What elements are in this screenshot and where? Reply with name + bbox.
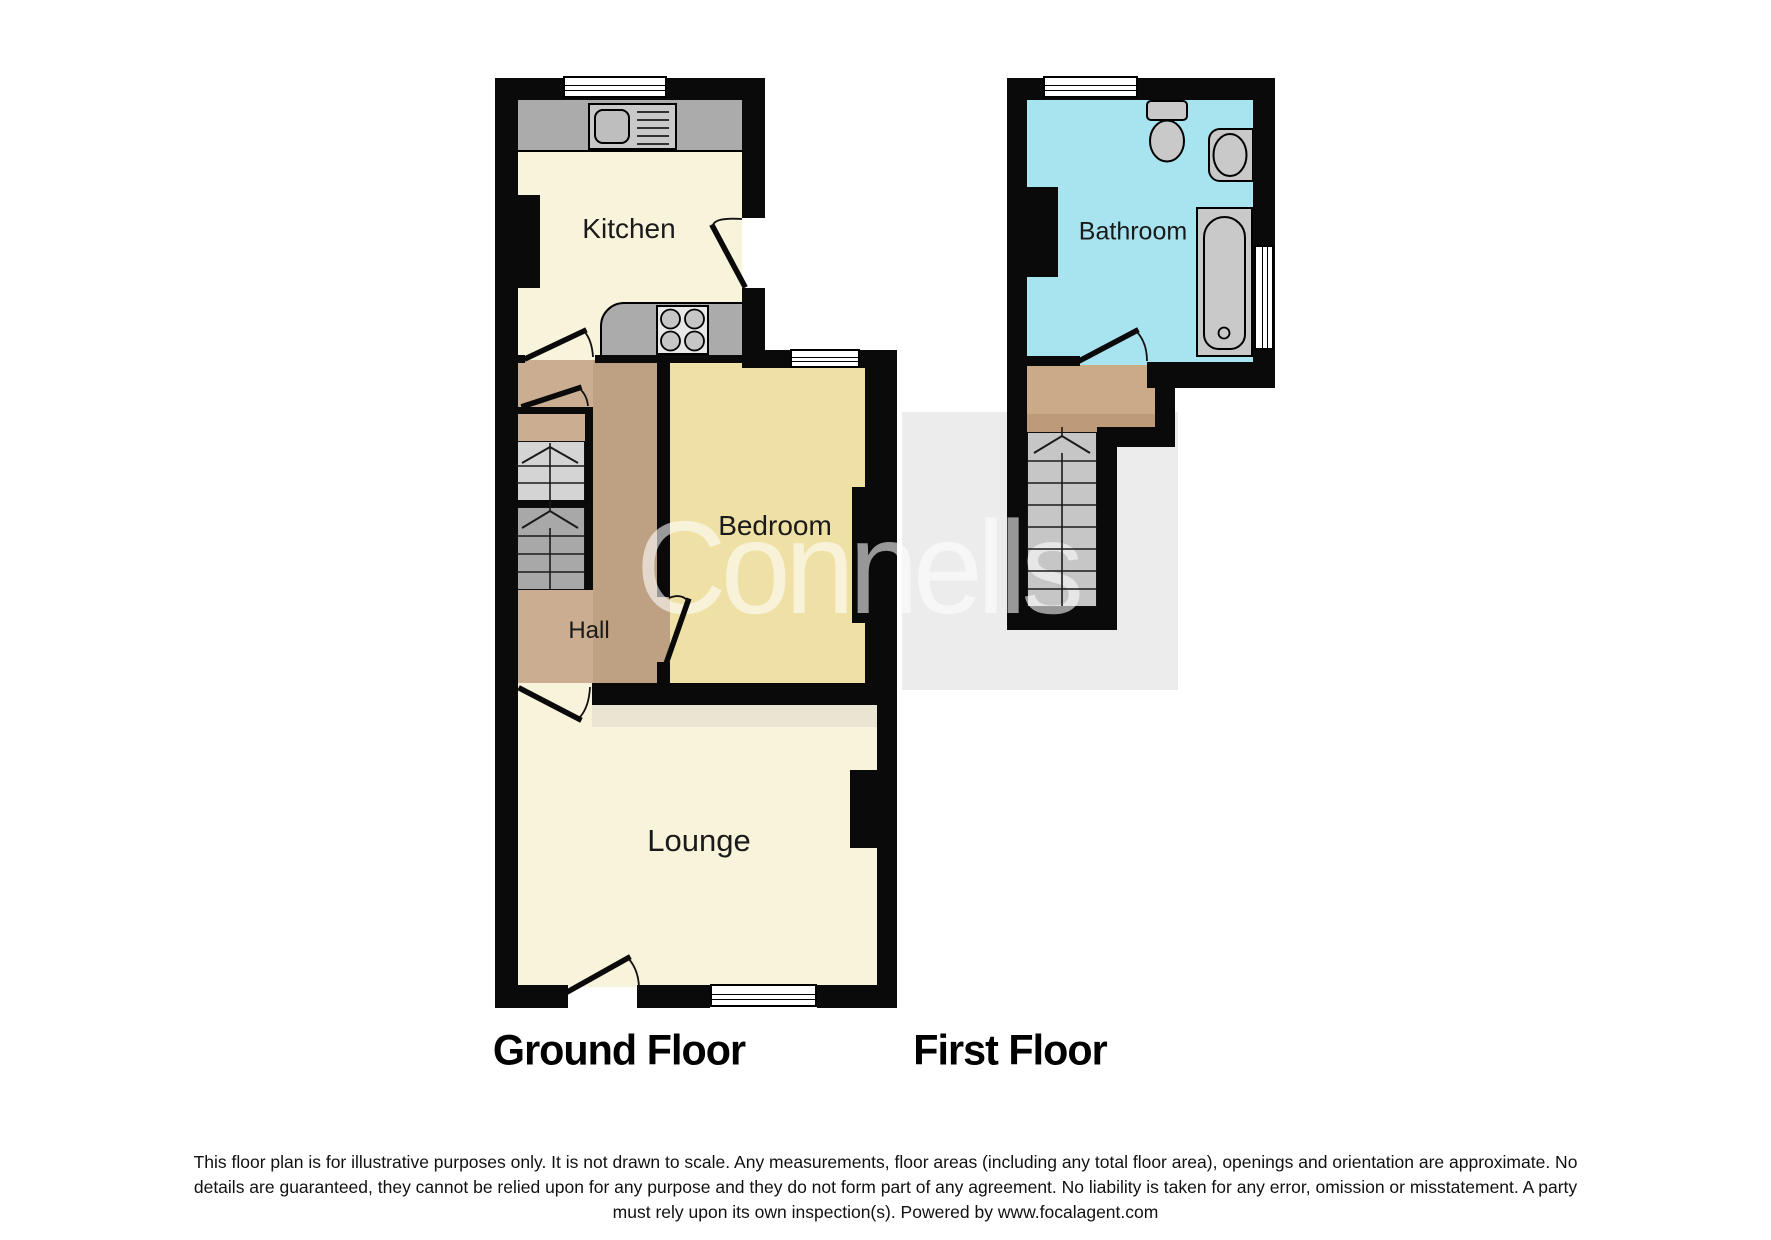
window-glazing — [711, 994, 816, 1000]
kitchen-chimney-breast — [518, 195, 540, 288]
wall — [1007, 356, 1080, 366]
wall — [742, 78, 765, 218]
lounge-top-strip — [592, 705, 877, 727]
window-glazing — [564, 85, 666, 91]
floor-plan-canvas: Connells — [0, 0, 1771, 1240]
staircase-ground-lower — [516, 507, 585, 590]
staircase-ground-upper — [516, 441, 585, 501]
hob-icon — [656, 305, 709, 355]
wall — [817, 985, 897, 1008]
wall — [592, 683, 877, 705]
ground-floor-title: Ground Floor — [493, 1027, 745, 1076]
toilet-tank-icon — [1146, 100, 1188, 121]
wall — [595, 355, 745, 363]
disclaimer-text: This floor plan is for illustrative purp… — [0, 1150, 1771, 1225]
wall — [513, 500, 593, 507]
hall-label: Hall — [568, 617, 609, 645]
disclaimer-line: This floor plan is for illustrative purp… — [0, 1150, 1771, 1175]
wall — [495, 78, 518, 1008]
watermark-text: Connells — [636, 492, 1078, 643]
bathroom-label: Bathroom — [1079, 218, 1187, 247]
wall — [742, 288, 765, 368]
wall — [877, 683, 897, 1008]
disclaimer-line: must rely upon its own inspection(s). Po… — [0, 1200, 1771, 1225]
window-glazing — [1262, 246, 1268, 349]
bathtub-inner — [1203, 216, 1246, 350]
first-floor-title: First Floor — [913, 1027, 1107, 1076]
lounge-chimney-breast — [850, 770, 877, 848]
lounge-window — [710, 984, 817, 1007]
bathroom-window-top — [1043, 76, 1138, 98]
bedroom-window — [790, 349, 860, 368]
wall — [1097, 427, 1175, 447]
bathroom-window-side — [1254, 245, 1274, 350]
lounge-label: Lounge — [647, 823, 750, 859]
wall — [495, 985, 568, 1008]
kitchen-window — [563, 76, 667, 98]
window-glazing — [791, 357, 859, 362]
basin-icon — [1208, 128, 1254, 182]
wall — [765, 350, 790, 368]
wall — [585, 407, 593, 590]
bedroom-label: Bedroom — [718, 510, 832, 542]
wall — [637, 985, 710, 1008]
wall — [1097, 447, 1117, 607]
window-glazing — [1044, 85, 1137, 91]
sink-bowl-icon — [594, 109, 630, 144]
bathroom-chimney-breast — [1027, 187, 1058, 277]
wall — [513, 407, 593, 414]
wall — [518, 355, 525, 363]
kitchen-label: Kitchen — [582, 213, 675, 245]
disclaimer-line: details are guaranteed, they cannot be r… — [0, 1175, 1771, 1200]
